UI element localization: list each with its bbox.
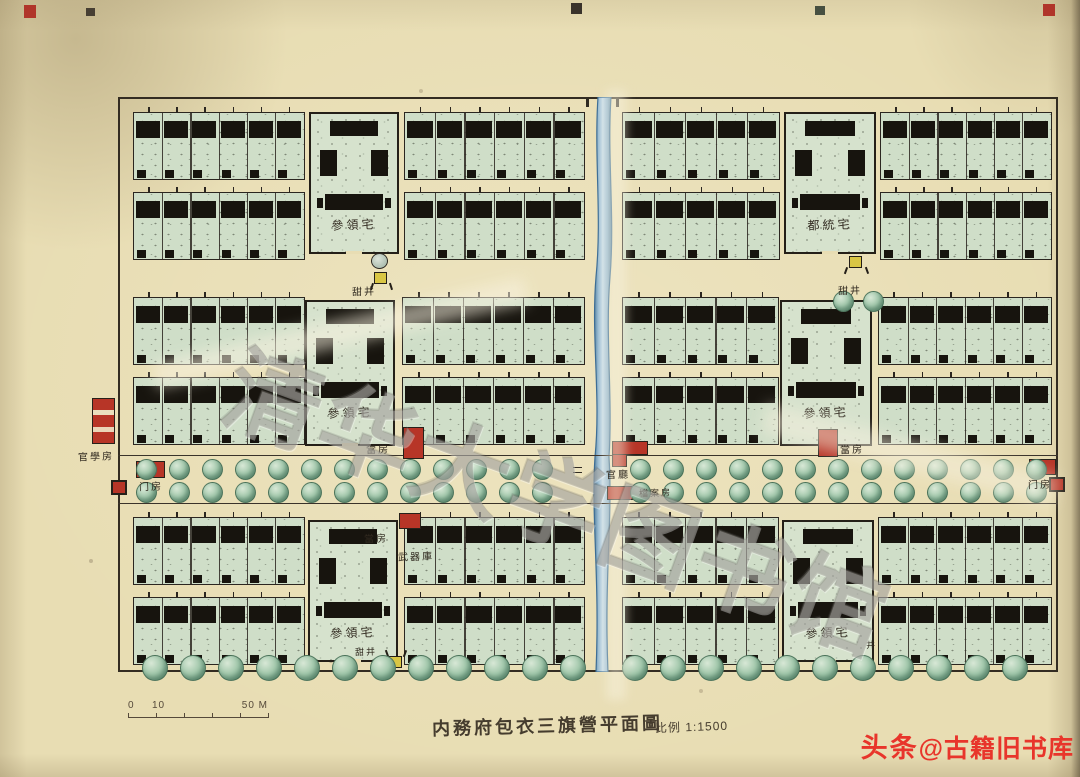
- wall-tick: [448, 372, 450, 377]
- door-mark: [137, 355, 146, 363]
- roof-band: [221, 201, 245, 218]
- roof-band: [687, 386, 714, 403]
- wall-tick: [420, 107, 422, 112]
- hall-wing: [790, 606, 796, 616]
- door-mark: [408, 575, 417, 583]
- tree: [960, 482, 981, 503]
- roof-band: [496, 526, 522, 543]
- roof-band: [1024, 306, 1049, 323]
- wall-tick: [450, 592, 452, 597]
- roof-band: [555, 526, 581, 543]
- well-label: 甜井: [355, 645, 377, 659]
- door-mark: [911, 575, 920, 583]
- tree: [861, 482, 882, 503]
- door-mark: [939, 575, 948, 583]
- roof-band: [495, 306, 521, 323]
- roof-band: [717, 526, 744, 543]
- wall-tick: [204, 512, 206, 517]
- roof-band: [995, 386, 1020, 403]
- watermark-credit: 头条@古籍旧书库: [861, 726, 1074, 765]
- well-structure: [374, 272, 387, 284]
- door-mark: [969, 170, 978, 178]
- wall-tick: [762, 292, 764, 297]
- door-mark: [912, 170, 921, 178]
- wall-tick: [701, 107, 703, 112]
- door-mark: [467, 170, 476, 178]
- roof-band: [496, 201, 522, 218]
- door-mark: [749, 575, 758, 583]
- wall-tick: [980, 107, 982, 112]
- barracks-row: [404, 192, 585, 260]
- door-mark: [526, 355, 535, 363]
- wall-tick: [922, 592, 924, 597]
- tree: [729, 459, 750, 480]
- side-hall: [371, 150, 388, 176]
- roof-band: [717, 606, 744, 623]
- wall-tick: [669, 592, 671, 597]
- wall-tick: [895, 107, 897, 112]
- unit-divider: [1022, 298, 1023, 364]
- wall-tick: [732, 187, 734, 192]
- roof-band: [995, 526, 1020, 543]
- wall-tick: [670, 187, 672, 192]
- compound-label: 參領宅: [784, 622, 873, 642]
- door-mark: [968, 575, 977, 583]
- hall-wing: [860, 606, 866, 616]
- unit-divider: [715, 518, 716, 584]
- registration-mark: [24, 5, 36, 18]
- door-mark: [749, 355, 758, 363]
- door-mark: [749, 435, 758, 443]
- unit-divider: [685, 598, 686, 664]
- roof-band: [192, 606, 216, 623]
- unit-divider: [936, 518, 937, 584]
- roof-band: [938, 386, 963, 403]
- scan-edge-shadow: [1071, 0, 1080, 777]
- roof-band: [465, 386, 491, 403]
- roof-band: [525, 306, 551, 323]
- roof-band: [192, 306, 216, 323]
- wall-tick: [479, 512, 481, 517]
- unit-divider: [162, 113, 163, 179]
- roof-band: [164, 201, 188, 218]
- hall-wing: [862, 198, 868, 208]
- door-mark: [137, 170, 146, 178]
- unit-divider: [435, 598, 436, 664]
- wall-tick: [148, 187, 150, 192]
- wall-tick: [509, 107, 511, 112]
- wall-tick: [950, 292, 952, 297]
- tree: [218, 655, 244, 681]
- tree: [367, 459, 388, 480]
- unit-divider: [909, 193, 910, 259]
- wall-tick: [289, 592, 291, 597]
- wall-tick: [539, 187, 541, 192]
- roof-band: [526, 606, 552, 623]
- wall-tick: [700, 292, 702, 297]
- tree: [202, 459, 223, 480]
- wall-tick: [148, 372, 150, 377]
- roof-band: [656, 201, 683, 218]
- wall-tick: [418, 372, 420, 377]
- wall-tick: [420, 592, 422, 597]
- compound-label: 參領宅: [311, 215, 398, 235]
- unit-divider: [715, 598, 716, 664]
- roof-band: [625, 526, 652, 543]
- road-edge-south: [118, 503, 1058, 504]
- roof-band: [968, 201, 992, 218]
- unit-divider: [654, 298, 655, 364]
- unit-divider: [162, 598, 163, 664]
- roof-band: [555, 606, 581, 623]
- unit-divider: [965, 518, 966, 584]
- tree: [400, 482, 421, 503]
- wall-tick: [176, 107, 178, 112]
- well-label: 甜井: [838, 282, 863, 298]
- tree: [484, 655, 510, 681]
- roof-band: [883, 201, 907, 218]
- unit-divider: [553, 113, 554, 179]
- wall-tick: [204, 107, 206, 112]
- wall-tick: [669, 292, 671, 297]
- roof-band: [525, 386, 551, 403]
- roof-band: [466, 606, 492, 623]
- wall-tick: [979, 512, 981, 517]
- courtyard-compound: 參領宅: [305, 300, 395, 446]
- door-mark: [137, 435, 146, 443]
- tree: [863, 291, 884, 312]
- unit-divider: [247, 193, 248, 259]
- door-mark: [556, 355, 565, 363]
- wall-tick: [176, 187, 178, 192]
- tree: [729, 482, 750, 503]
- tree: [812, 655, 838, 681]
- tree: [927, 459, 948, 480]
- roof-band: [656, 606, 683, 623]
- wall-tick: [479, 187, 481, 192]
- door-mark: [969, 250, 978, 258]
- door-mark: [996, 435, 1005, 443]
- wall-tick: [762, 372, 764, 377]
- wall-tick: [204, 372, 206, 377]
- roof-band: [407, 121, 433, 138]
- wall-tick: [289, 512, 291, 517]
- door-mark: [750, 170, 759, 178]
- unit-divider: [275, 598, 276, 664]
- wall-tick: [1008, 187, 1010, 192]
- hall-wing: [317, 198, 323, 208]
- barracks-row: [878, 297, 1052, 365]
- tree: [235, 459, 256, 480]
- credit-handle: @古籍旧书库: [919, 735, 1074, 763]
- roof-band: [625, 201, 652, 218]
- door-mark: [165, 575, 174, 583]
- wall-tick: [233, 187, 235, 192]
- barracks-row: [402, 297, 585, 365]
- roof-band: [221, 121, 245, 138]
- tree: [762, 482, 783, 503]
- unit-divider: [966, 113, 967, 179]
- roof-band: [136, 121, 160, 138]
- wall-tick: [923, 107, 925, 112]
- door-mark: [626, 250, 635, 258]
- door-mark: [940, 250, 949, 258]
- roof-band: [717, 386, 744, 403]
- pawnshop-label: 當房: [364, 530, 389, 546]
- unit-divider: [494, 518, 495, 584]
- door-mark: [556, 250, 565, 258]
- door-mark: [688, 655, 697, 663]
- roof-band: [526, 201, 552, 218]
- pawnshop-building: [403, 427, 424, 459]
- tree: [256, 655, 282, 681]
- roof-band: [625, 386, 652, 403]
- wall-tick: [950, 592, 952, 597]
- roof-band: [718, 201, 745, 218]
- side-hall: [316, 338, 333, 364]
- hall-wing: [313, 386, 319, 396]
- door-mark: [718, 435, 727, 443]
- courtyard-compound: 參領宅: [782, 520, 874, 662]
- unit-divider: [937, 113, 938, 179]
- door-mark: [497, 575, 506, 583]
- roof-band: [910, 606, 935, 623]
- side-hall: [793, 558, 810, 584]
- wall-tick: [638, 512, 640, 517]
- door-mark: [496, 355, 505, 363]
- roof-band: [277, 526, 301, 543]
- unit-divider: [966, 193, 967, 259]
- roof-band: [164, 606, 188, 623]
- roof-band: [466, 121, 492, 138]
- roof-band: [748, 606, 775, 623]
- wall-tick: [979, 592, 981, 597]
- roof-band: [717, 306, 744, 323]
- wall-tick: [1007, 372, 1009, 377]
- roof-band: [718, 121, 745, 138]
- door-mark: [1025, 435, 1034, 443]
- door-mark: [626, 575, 635, 583]
- door-mark: [222, 355, 231, 363]
- roof-band: [407, 606, 433, 623]
- gatehouse-label: 门房: [139, 478, 164, 494]
- door-mark: [165, 435, 174, 443]
- door-mark: [626, 355, 635, 363]
- wall-tick: [731, 592, 733, 597]
- door-mark: [911, 355, 920, 363]
- door-mark: [997, 170, 1006, 178]
- unit-divider: [275, 298, 276, 364]
- tree: [400, 459, 421, 480]
- wall-tick: [731, 292, 733, 297]
- wall-tick: [638, 292, 640, 297]
- unit-divider: [965, 378, 966, 444]
- unit-divider: [435, 113, 436, 179]
- roof-band: [939, 201, 963, 218]
- tree: [169, 482, 190, 503]
- gatehouse-label: 门房: [1028, 476, 1053, 492]
- unit-divider: [463, 298, 464, 364]
- unit-divider: [936, 298, 937, 364]
- door-mark: [911, 435, 920, 443]
- tree: [1002, 655, 1028, 681]
- unit-divider: [685, 193, 686, 259]
- wall-tick: [979, 292, 981, 297]
- door-mark: [497, 250, 506, 258]
- wall-tick: [509, 592, 511, 597]
- wall-tick: [538, 372, 540, 377]
- door-mark: [556, 170, 565, 178]
- archive-label: 檔案房: [639, 485, 672, 499]
- barracks-row: [622, 112, 780, 180]
- roof-band: [749, 201, 776, 218]
- courtyard-compound: 參領宅: [309, 112, 399, 254]
- wall-tick: [176, 512, 178, 517]
- wall-tick: [670, 107, 672, 112]
- gate-gap: [822, 251, 838, 254]
- wall-tick: [261, 187, 263, 192]
- roof-band: [911, 121, 935, 138]
- unit-divider: [190, 518, 191, 584]
- roof-band: [748, 526, 775, 543]
- wall-tick: [638, 372, 640, 377]
- door-mark: [688, 575, 697, 583]
- wall-tick: [1036, 592, 1038, 597]
- unit-divider: [747, 113, 748, 179]
- wall-tick: [233, 107, 235, 112]
- barracks-row: [622, 377, 779, 445]
- door-mark: [657, 575, 666, 583]
- roof-band: [277, 121, 301, 138]
- door-mark: [996, 355, 1005, 363]
- wall-tick: [508, 292, 510, 297]
- roof-band: [221, 386, 245, 403]
- roof-band: [249, 306, 273, 323]
- door-mark: [165, 170, 174, 178]
- unit-divider: [524, 598, 525, 664]
- tree: [622, 655, 648, 681]
- wall-tick: [893, 512, 895, 517]
- tree: [370, 655, 396, 681]
- roof-band: [249, 201, 273, 218]
- wall-tick: [233, 512, 235, 517]
- wall-tick: [1036, 187, 1038, 192]
- pawnshop-label: 當房: [366, 441, 391, 457]
- tree: [433, 459, 454, 480]
- barracks-row: [878, 517, 1052, 585]
- roof-band: [939, 121, 963, 138]
- roof-band: [996, 121, 1020, 138]
- unit-divider: [654, 193, 655, 259]
- unit-divider: [716, 113, 717, 179]
- roof-band: [136, 201, 160, 218]
- unit-divider: [965, 598, 966, 664]
- door-mark: [882, 575, 891, 583]
- door-mark: [968, 435, 977, 443]
- door-mark: [968, 355, 977, 363]
- unit-divider: [1022, 378, 1023, 444]
- tree: [663, 459, 684, 480]
- door-mark: [884, 250, 893, 258]
- tree: [235, 482, 256, 503]
- unit-divider: [715, 378, 716, 444]
- roof-band: [466, 201, 492, 218]
- wall-tick: [176, 292, 178, 297]
- roof-band: [277, 201, 301, 218]
- door-mark: [438, 250, 447, 258]
- wall-tick: [539, 592, 541, 597]
- wall-tick: [568, 512, 570, 517]
- wall-tick: [509, 187, 511, 192]
- unit-divider: [994, 193, 995, 259]
- rear-hall: [321, 382, 379, 398]
- tree: [367, 482, 388, 503]
- roof-band: [526, 526, 552, 543]
- door-mark: [278, 435, 287, 443]
- roof-band: [687, 306, 714, 323]
- roof-band: [465, 306, 491, 323]
- roof-band: [938, 306, 963, 323]
- door-mark: [278, 250, 287, 258]
- barracks-row: [133, 192, 305, 260]
- scanned-plan-page: 甜井 甜井 甜井 井 當房 當房 當房 官廳 檔案房 官學房 门房 门房 武器庫…: [0, 0, 1080, 777]
- unit-divider: [162, 378, 163, 444]
- roof-band: [656, 526, 683, 543]
- tree: [774, 655, 800, 681]
- side-hall: [791, 338, 808, 364]
- roof-band: [687, 201, 714, 218]
- wall-tick: [1008, 107, 1010, 112]
- scale-bar-line: [128, 717, 268, 718]
- door-mark: [438, 655, 447, 663]
- wall-tick: [568, 292, 570, 297]
- unit-divider: [464, 193, 465, 259]
- roof-band: [437, 606, 463, 623]
- unit-divider: [936, 378, 937, 444]
- scale-bar-mid: 10: [152, 700, 165, 711]
- door-mark: [137, 250, 146, 258]
- wall-gate: [111, 480, 127, 495]
- roof-band: [221, 606, 245, 623]
- unit-divider: [553, 193, 554, 259]
- door-mark: [556, 435, 565, 443]
- tree: [532, 482, 553, 503]
- roof-band: [437, 121, 463, 138]
- door-mark: [466, 435, 475, 443]
- wall-tick: [448, 292, 450, 297]
- unit-divider: [1022, 113, 1023, 179]
- wall-tick: [420, 187, 422, 192]
- door-mark: [719, 250, 728, 258]
- tree: [762, 459, 783, 480]
- tree: [696, 482, 717, 503]
- road-edge-north: [118, 455, 1058, 456]
- barracks-row: [880, 192, 1052, 260]
- wall-tick: [261, 592, 263, 597]
- unit-divider: [524, 518, 525, 584]
- roof-band: [967, 526, 992, 543]
- door-mark: [882, 355, 891, 363]
- door-mark: [438, 170, 447, 178]
- wall-tick: [538, 292, 540, 297]
- wall-tick: [951, 107, 953, 112]
- wall-tick: [763, 187, 765, 192]
- roof-band: [938, 606, 963, 623]
- unit-divider: [654, 518, 655, 584]
- roof-band: [749, 121, 776, 138]
- roof-band: [164, 526, 188, 543]
- unit-divider: [523, 298, 524, 364]
